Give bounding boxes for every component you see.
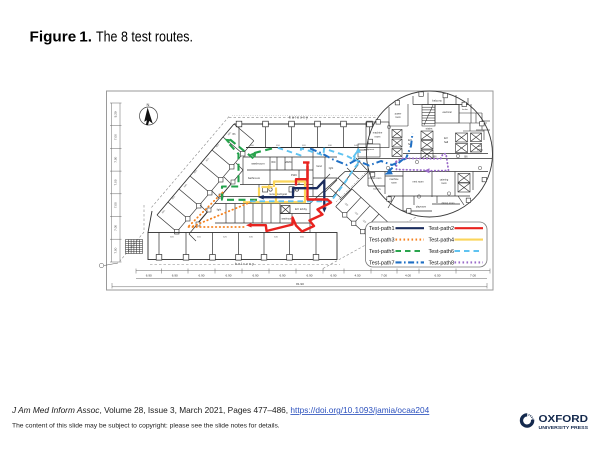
svg-text:7.00: 7.00	[114, 156, 118, 162]
svg-text:7.00: 7.00	[381, 274, 387, 278]
svg-text:hall: hall	[444, 140, 449, 144]
svg-text:7.00: 7.00	[114, 247, 118, 253]
svg-text:room: room	[391, 182, 396, 185]
svg-text:EV lobby: EV lobby	[295, 207, 308, 211]
svg-text:washroom: washroom	[251, 162, 265, 166]
svg-text:FWC: FWC	[291, 173, 297, 177]
svg-text:6.90: 6.90	[172, 274, 178, 278]
svg-text:locker: locker	[462, 108, 468, 111]
svg-text:Test-path2: Test-path2	[429, 226, 455, 232]
svg-text:machine: machine	[373, 132, 383, 135]
svg-text:J Am Med Inform Assoc, Volume: J Am Med Inform Assoc, Volume 28, Issue …	[11, 405, 430, 415]
svg-text:4.00: 4.00	[405, 274, 411, 278]
svg-text:7.00: 7.00	[470, 274, 476, 278]
svg-text:7.00: 7.00	[114, 134, 118, 140]
svg-text:The 8 test routes.: The 8 test routes.	[96, 29, 193, 46]
svg-text:6.90: 6.90	[198, 274, 204, 278]
svg-text:room: room	[375, 136, 381, 139]
svg-text:light: light	[217, 209, 222, 212]
svg-text:nurse start/goal: nurse start/goal	[269, 192, 287, 196]
svg-text:Test-path7: Test-path7	[369, 260, 395, 266]
svg-text:room: room	[441, 182, 446, 185]
svg-text:balcony: balcony	[373, 189, 381, 191]
svg-text:next room: next room	[412, 181, 423, 184]
svg-text:balcony: balcony	[432, 99, 442, 103]
svg-text:Test-path5: Test-path5	[369, 249, 395, 255]
svg-text:6.90: 6.90	[306, 274, 312, 278]
svg-text:Test-path1: Test-path1	[369, 226, 395, 232]
svg-text:UNIVERSITY PRESS: UNIVERSITY PRESS	[539, 425, 589, 430]
svg-text:7.00: 7.00	[114, 202, 118, 208]
svg-text:81.90: 81.90	[296, 282, 304, 286]
svg-text:electrical: electrical	[442, 111, 452, 114]
svg-text:OXFORD: OXFORD	[539, 414, 589, 425]
svg-text:The content of this slide may: The content of this slide may be subject…	[12, 423, 280, 430]
svg-text:Test-path3: Test-path3	[369, 238, 395, 244]
svg-text:dining room: dining room	[441, 202, 454, 205]
svg-text:6.90: 6.90	[146, 274, 152, 278]
svg-text:4.50: 4.50	[354, 274, 360, 278]
svg-text:light: light	[329, 167, 334, 170]
svg-text:equipment: equipment	[364, 148, 375, 151]
svg-text:7.00: 7.00	[114, 225, 118, 231]
svg-text:nurse room: nurse room	[369, 177, 382, 180]
svg-text:bathroom: bathroom	[248, 176, 261, 180]
svg-text:7.00: 7.00	[114, 179, 118, 185]
svg-text:balcony: balcony	[235, 262, 255, 266]
svg-text:6.90: 6.90	[330, 274, 336, 278]
svg-text:Figure 1.: Figure 1.	[30, 29, 93, 46]
svg-text:B6: B6	[464, 155, 468, 159]
svg-text:WC: WC	[271, 160, 276, 164]
svg-text:5.29: 5.29	[114, 111, 118, 117]
svg-text:room: room	[395, 116, 400, 119]
svg-text:hand: hand	[316, 165, 322, 168]
svg-text:washroom: washroom	[281, 218, 292, 221]
svg-text:6.90: 6.90	[225, 274, 231, 278]
svg-text:WMC: WMC	[285, 160, 292, 164]
svg-text:N: N	[147, 102, 150, 107]
svg-text:6.50: 6.50	[434, 274, 440, 278]
svg-text:Test-path4: Test-path4	[429, 238, 455, 244]
svg-text:6.90: 6.90	[279, 274, 285, 278]
svg-text:6.90: 6.90	[252, 274, 258, 278]
svg-text:Test-path8: Test-path8	[429, 260, 455, 266]
svg-text:balcony: balcony	[289, 116, 309, 120]
svg-text:Test-path6: Test-path6	[429, 249, 455, 255]
svg-text:stairs: stairs	[426, 127, 433, 131]
svg-text:lobby: lobby	[477, 149, 484, 152]
svg-text:playroom: playroom	[416, 206, 426, 209]
